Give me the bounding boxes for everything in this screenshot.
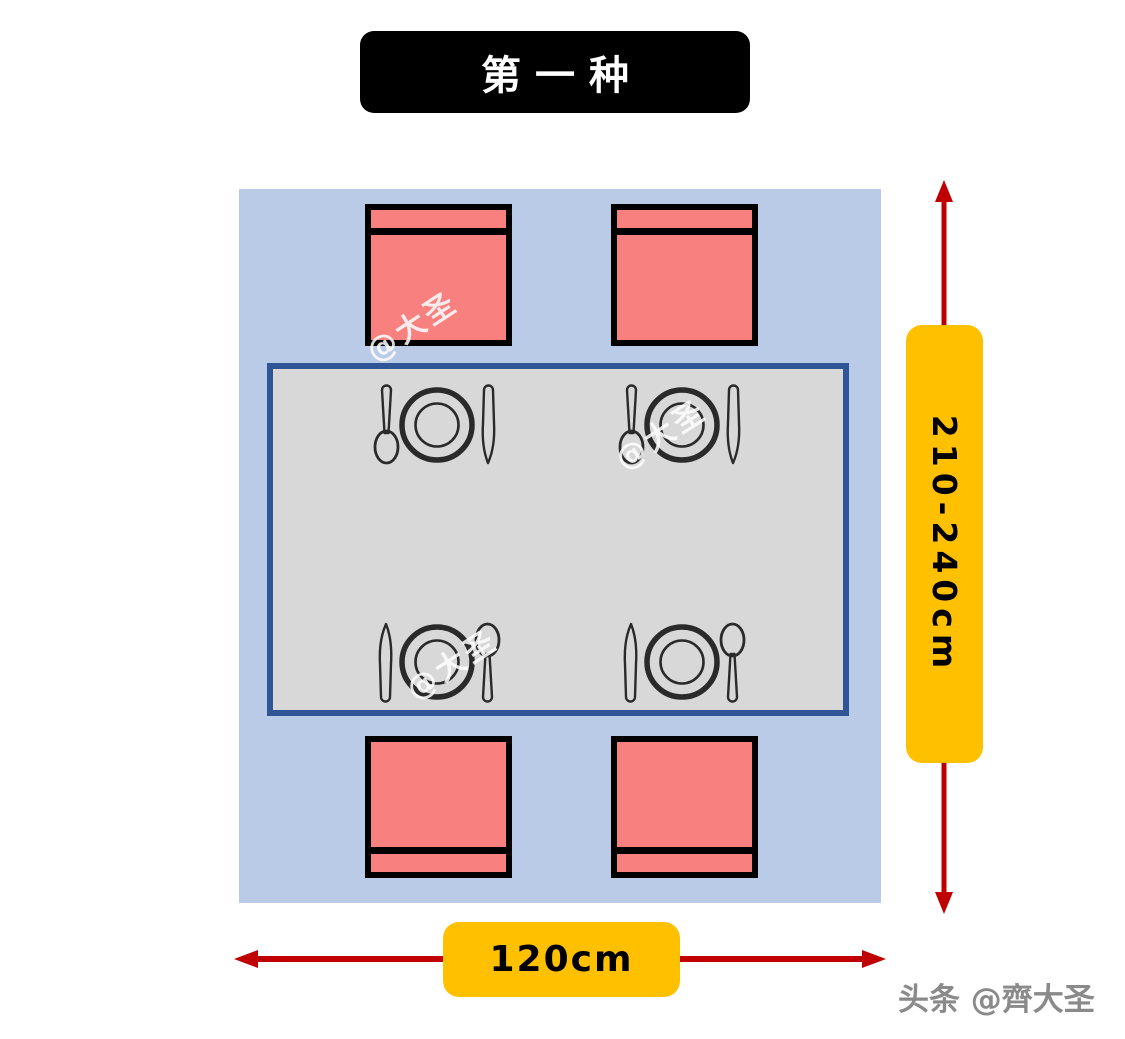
width-dimension-label: 120cm	[443, 922, 680, 997]
chair-bottom-left	[365, 736, 512, 878]
chair-backrest-line	[371, 228, 506, 235]
width-dimension-text: 120cm	[490, 939, 634, 980]
chair-backrest-line	[617, 228, 752, 235]
height-dimension-text: 210-240cm	[925, 414, 964, 673]
chair-backrest-line	[617, 847, 752, 854]
floor-plan-diagram: 第一种 210-240cm 120cm @大圣 @大圣	[0, 0, 1125, 1039]
place-setting-icon	[607, 381, 757, 469]
height-dimension-label: 210-240cm	[906, 325, 983, 763]
dining-table	[267, 363, 849, 716]
place-setting-icon	[607, 618, 757, 706]
chair-backrest-line	[371, 847, 506, 854]
arrowhead-up-icon	[935, 180, 953, 202]
arrowhead-right-icon	[862, 950, 886, 968]
arrowhead-down-icon	[935, 892, 953, 914]
place-setting-icon	[362, 381, 512, 469]
chair-bottom-right	[611, 736, 758, 878]
author-credit: 头条 @齊大圣	[898, 974, 1118, 1019]
place-setting-icon	[362, 618, 512, 706]
variant-title-text: 第一种	[467, 43, 643, 101]
chair-top-left	[365, 204, 512, 346]
variant-title-badge: 第一种	[360, 31, 750, 113]
arrowhead-left-icon	[234, 950, 258, 968]
chair-top-right	[611, 204, 758, 346]
